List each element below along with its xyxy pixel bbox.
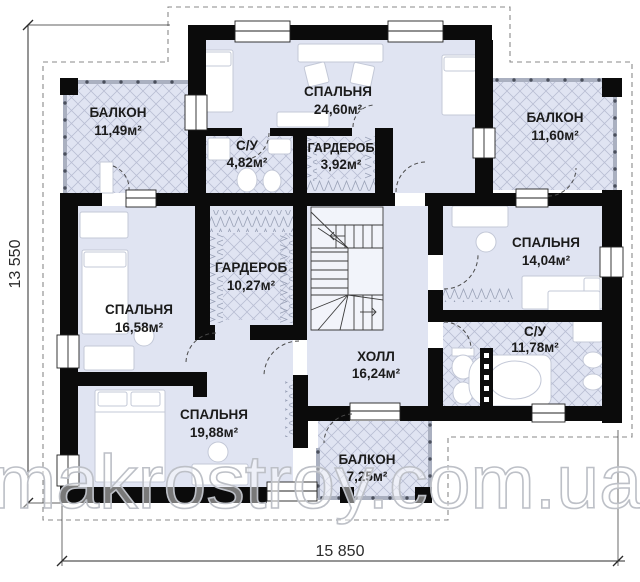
- room-label: БАЛКОН: [89, 105, 146, 120]
- width-dimension-label: 15 850: [316, 543, 365, 560]
- room-label: ХОЛЛ: [357, 349, 395, 364]
- room-area: 16,58м²: [115, 320, 164, 335]
- room-label: ГАРДЕРОБ: [215, 260, 288, 275]
- room-area: 24,60м²: [314, 102, 363, 117]
- room-area: 19,88м²: [190, 425, 239, 440]
- window: [185, 95, 207, 130]
- room-area: 3,92м²: [321, 157, 362, 172]
- staircase: [311, 207, 383, 330]
- height-dimension-label: 13 550: [7, 239, 24, 288]
- window: [235, 21, 290, 42]
- window: [516, 189, 548, 207]
- room-label: ГАРДЕРОБ: [308, 141, 375, 155]
- room-label: С/У: [236, 138, 259, 153]
- window: [473, 128, 495, 158]
- balcony-pillar: [60, 78, 78, 95]
- window: [532, 404, 565, 422]
- window: [388, 21, 443, 42]
- room-area: 10,27м²: [227, 278, 276, 293]
- wardrobe-1027-hatch: [223, 233, 290, 320]
- room-area: 16,24м²: [352, 366, 401, 381]
- window: [350, 403, 400, 420]
- room-area: 4,82м²: [227, 155, 268, 170]
- room-label: СПАЛЬНЯ: [180, 407, 248, 422]
- room-area: 11,60м²: [531, 128, 579, 143]
- room-area: 11,49м²: [94, 123, 142, 138]
- door-leaf-balcony-1149: [100, 162, 113, 193]
- floor-plan-page: БАЛКОН 11,49м² СПАЛЬНЯ 24,60м² БАЛКОН 11…: [0, 0, 640, 582]
- room-label: БАЛКОН: [526, 110, 583, 125]
- balcony-1149-hatch: [67, 84, 188, 193]
- room-label: СПАЛЬНЯ: [304, 84, 372, 99]
- room-label: СПАЛЬНЯ: [105, 302, 173, 317]
- room-label: СПАЛЬНЯ: [512, 235, 580, 250]
- watermark: makrostroy.com.ua: [0, 440, 640, 525]
- balcony-pillar: [602, 78, 622, 97]
- window: [126, 190, 156, 207]
- floor-plan-drawing: БАЛКОН 11,49м² СПАЛЬНЯ 24,60м² БАЛКОН 11…: [0, 0, 640, 582]
- window: [57, 335, 79, 368]
- window: [600, 247, 623, 277]
- room-label: С/У: [524, 324, 547, 339]
- room-area: 11,78м²: [511, 340, 559, 355]
- radiator: [480, 348, 493, 406]
- room-area: 14,04м²: [522, 253, 571, 268]
